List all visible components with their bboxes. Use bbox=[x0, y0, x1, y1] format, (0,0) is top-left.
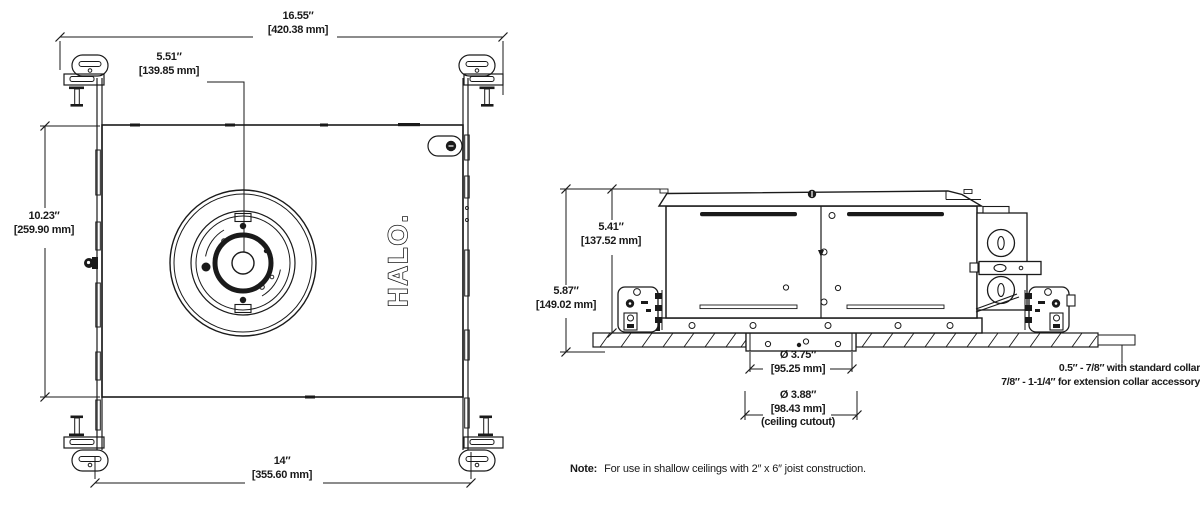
mounting-screw bbox=[478, 416, 493, 437]
dimensional-drawing-page: HALO. bbox=[0, 0, 1200, 516]
footnote: Note:For use in shallow ceilings with 2″… bbox=[570, 463, 866, 475]
plan-view: HALO. bbox=[40, 33, 508, 488]
collar-note-line1: 0.5″ - 7/8″ with standard collar bbox=[958, 362, 1200, 376]
dim-inches: 14″ bbox=[222, 455, 342, 469]
dim-mm: [420.38 mm] bbox=[238, 24, 358, 38]
mounting-screw bbox=[69, 87, 84, 107]
ceiling-section bbox=[593, 333, 1135, 347]
dim-caption: (ceiling cutout) bbox=[737, 416, 859, 430]
vent-slot bbox=[847, 212, 944, 216]
halo-logo: HALO. bbox=[383, 213, 413, 307]
dim-mm: [137.52 mm] bbox=[561, 235, 661, 249]
footnote-text: For use in shallow ceilings with 2″ x 6″… bbox=[604, 463, 866, 475]
bracket-top-right bbox=[459, 55, 503, 107]
side-bracket-right bbox=[1025, 287, 1075, 332]
dim-side-overall-height: 5.87″ [149.02 mm] bbox=[516, 285, 616, 312]
dim-inches: Ø 3.75″ bbox=[737, 349, 859, 363]
hanger-bar-left bbox=[84, 78, 102, 450]
dim-side-housing-height: 5.41″ [137.52 mm] bbox=[561, 221, 661, 248]
collar-depth-note: 0.5″ - 7/8″ with standard collar 7/8″ - … bbox=[958, 362, 1200, 389]
dim-plan-aperture-offset: 5.51″ [139.85 mm] bbox=[119, 51, 219, 78]
housing-lid bbox=[659, 189, 982, 206]
dim-inches: 16.55″ bbox=[238, 10, 358, 24]
mounting-flange bbox=[652, 318, 982, 333]
dim-mm: [98.43 mm] bbox=[737, 403, 859, 417]
bracket-bottom-right bbox=[459, 416, 503, 472]
cable-clamp bbox=[979, 262, 1041, 275]
mounting-screw bbox=[69, 416, 84, 437]
ceiling-edge-extension bbox=[1098, 335, 1135, 345]
dim-inches: 10.23″ bbox=[0, 210, 88, 224]
dim-inches: 5.51″ bbox=[119, 51, 219, 65]
dim-collar-diameter: Ø 3.75″ [95.25 mm] bbox=[737, 349, 859, 376]
dim-plan-pan-width: 14″ [355.60 mm] bbox=[222, 455, 342, 482]
footnote-label: Note: bbox=[570, 463, 597, 475]
aperture-center bbox=[232, 252, 254, 274]
housing-body bbox=[666, 206, 977, 318]
dim-mm: [355.60 mm] bbox=[222, 469, 342, 483]
dim-mm: [95.25 mm] bbox=[737, 363, 859, 377]
side-bracket-left bbox=[618, 287, 662, 332]
dim-mm: [139.85 mm] bbox=[119, 65, 219, 79]
dim-ceiling-cutout: Ø 3.88″ [98.43 mm] (ceiling cutout) bbox=[737, 389, 859, 430]
vent-slot bbox=[700, 212, 797, 216]
knockout-oval bbox=[428, 136, 462, 156]
pan-edge-tabs bbox=[130, 123, 420, 399]
dim-mm: [259.90 mm] bbox=[0, 224, 88, 238]
collar-note-line2: 7/8″ - 1-1/4″ for extension collar acces… bbox=[958, 376, 1200, 390]
aperture-assembly bbox=[170, 190, 316, 336]
nail-latch bbox=[84, 257, 98, 269]
dim-inches: 5.41″ bbox=[561, 221, 661, 235]
mounting-screw bbox=[480, 87, 495, 107]
dim-inches: 5.87″ bbox=[516, 285, 616, 299]
dim-mm: [149.02 mm] bbox=[516, 299, 616, 313]
plan-dimension-lines bbox=[40, 33, 508, 488]
dim-plan-pan-height: 10.23″ [259.90 mm] bbox=[0, 210, 88, 237]
hanger-bar-right bbox=[463, 78, 469, 450]
dim-inches: Ø 3.88″ bbox=[737, 389, 859, 403]
dim-plan-overall-width: 16.55″ [420.38 mm] bbox=[238, 10, 358, 37]
